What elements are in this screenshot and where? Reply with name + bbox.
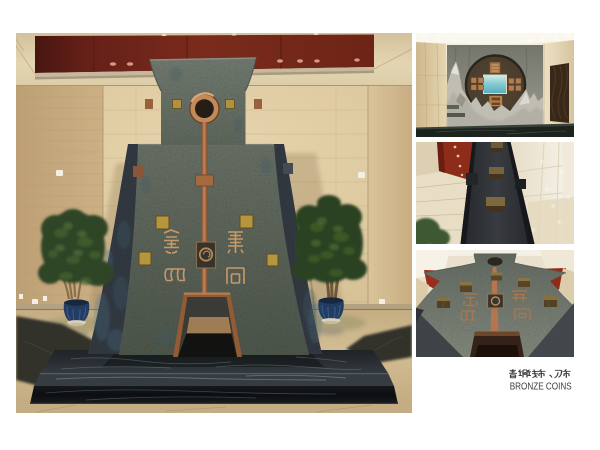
svg-text:BRONZE COINS: BRONZE COINS (510, 381, 572, 393)
